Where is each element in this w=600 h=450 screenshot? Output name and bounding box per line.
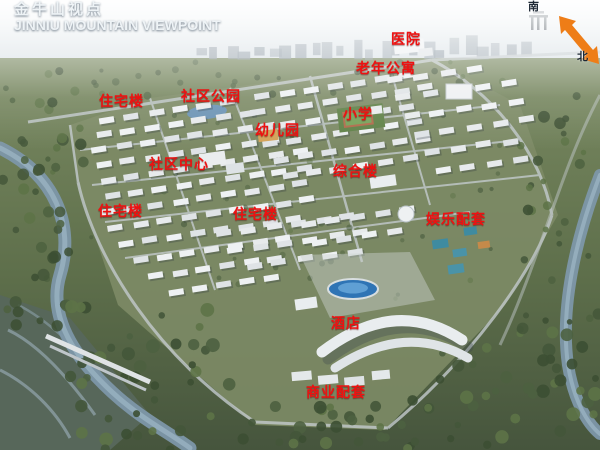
map-label-kindergarten: 幼儿园 xyxy=(255,122,300,138)
compass-north-label: 北 xyxy=(577,52,588,63)
map-label-community-park: 社区公园 xyxy=(181,88,241,104)
aerial-masterplan-image: 金牛山视点 JINNIU MOUNTAIN VIEWPOINT 南 北 医院老年… xyxy=(0,0,600,450)
map-label-senior-apartments: 老年公寓 xyxy=(356,60,416,76)
labels-layer: 医院老年公寓住宅楼社区公园小学幼儿园社区中心综合楼住宅楼住宅楼娱乐配套酒店商业配… xyxy=(0,0,600,450)
map-label-residential-2: 住宅楼 xyxy=(98,203,143,219)
viewpoint-title-cn: 金牛山视点 xyxy=(14,2,221,17)
map-label-entertainment-facilities: 娱乐配套 xyxy=(426,211,486,227)
map-label-mixed-use-building: 综合楼 xyxy=(333,163,378,179)
map-label-residential-1: 住宅楼 xyxy=(99,93,144,109)
viewpoint-title-en: JINNIU MOUNTAIN VIEWPOINT xyxy=(14,18,221,32)
map-label-commercial-facilities: 商业配套 xyxy=(306,384,366,400)
map-label-community-center: 社区中心 xyxy=(149,156,209,172)
map-label-primary-school: 小学 xyxy=(343,106,373,122)
map-label-hotel: 酒店 xyxy=(331,315,361,331)
compass-south-label: 南 xyxy=(528,2,539,13)
viewpoint-title: 金牛山视点 JINNIU MOUNTAIN VIEWPOINT xyxy=(14,2,221,32)
map-label-residential-3: 住宅楼 xyxy=(233,206,278,222)
map-label-hospital: 医院 xyxy=(391,31,421,47)
